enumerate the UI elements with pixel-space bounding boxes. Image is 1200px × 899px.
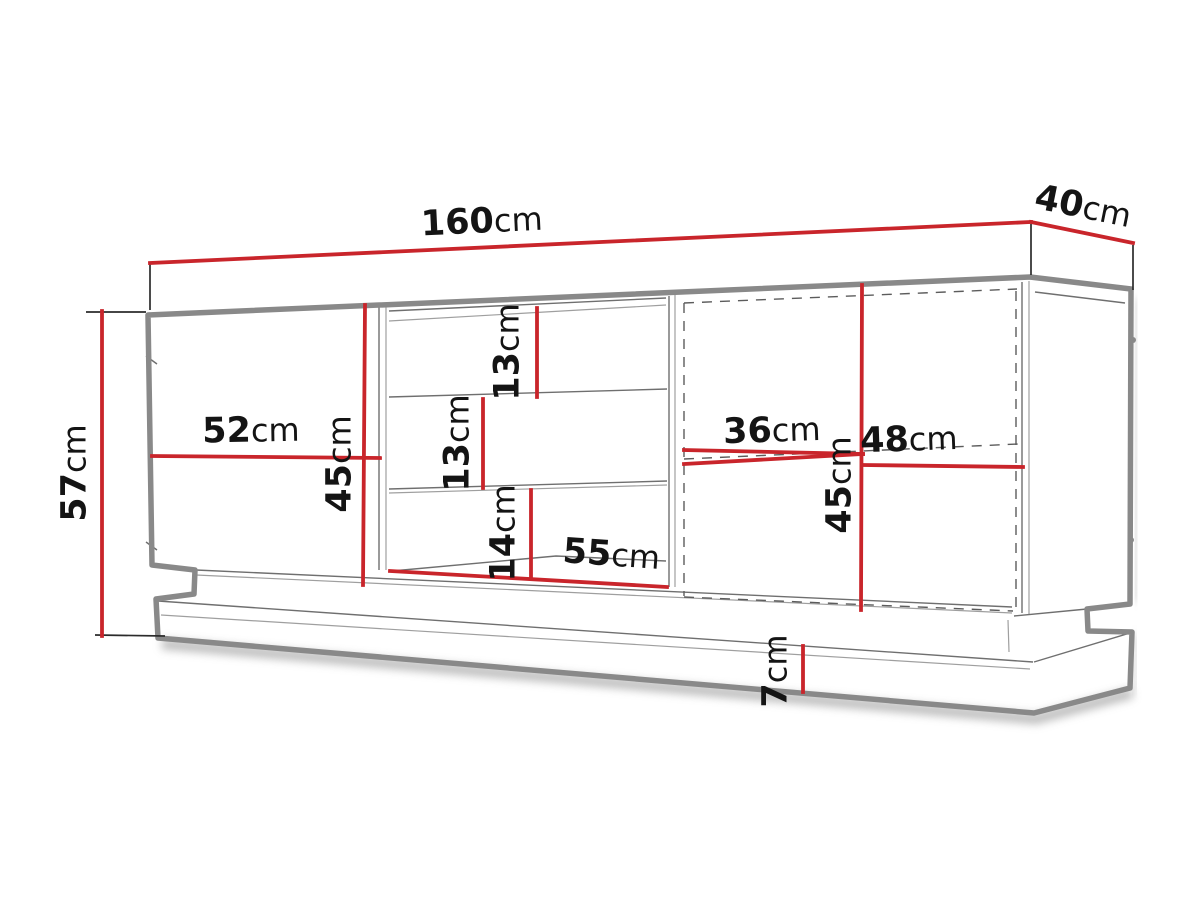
shadow-group xyxy=(162,298,1137,719)
label-depth: 40cm xyxy=(1031,177,1135,236)
dim-line-left-section-height xyxy=(363,305,365,585)
label-bottom-shelf-height: 14cm xyxy=(484,484,524,581)
tick-height-bottom xyxy=(95,635,165,636)
label-plinth-height: 7cm xyxy=(756,634,796,707)
side-band-edge xyxy=(1014,609,1087,616)
furniture-dimension-diagram: 160cm 40cm 57cm 52cm 45cm 13cm 13cm 14cm… xyxy=(0,0,1200,899)
dimension-labels: 160cm 40cm 57cm 52cm 45cm 13cm 13cm 14cm… xyxy=(55,177,1135,707)
label-left-section-height: 45cm xyxy=(320,415,360,512)
shelf-middle-2 xyxy=(389,485,667,493)
shelf-middle xyxy=(389,481,667,489)
plinth-top-edge-2 xyxy=(161,615,1030,669)
label-left-door-width: 52cm xyxy=(202,410,300,452)
body-bottom-edge xyxy=(196,570,1012,607)
band-corner-edge xyxy=(1008,620,1009,652)
cabinet-detail-lines xyxy=(146,281,1136,669)
shadow-right-upper xyxy=(1135,298,1137,602)
label-right-inner-width: 36cm xyxy=(722,409,821,452)
body-bottom-edge-2 xyxy=(196,575,1012,613)
niche-top-line-2 xyxy=(389,305,666,321)
label-total-height: 57cm xyxy=(55,424,95,521)
label-shelf-width: 55cm xyxy=(561,531,661,578)
dim-line-right-door-width xyxy=(863,465,1023,467)
label-total-width: 160cm xyxy=(420,199,544,245)
tv-stand-drawing: 160cm 40cm 57cm 52cm 45cm 13cm 13cm 14cm… xyxy=(0,0,1200,899)
label-top-shelf-height: 13cm xyxy=(488,303,528,400)
label-right-section-height: 45cm xyxy=(820,436,860,533)
side-top-inner-edge xyxy=(1035,292,1125,303)
plinth-top-side-edge xyxy=(1034,633,1130,662)
label-right-door-width: 48cm xyxy=(859,418,958,461)
cabinet-outline xyxy=(148,277,1132,713)
dim-line-total-width xyxy=(150,222,1031,263)
shelf-top xyxy=(389,389,667,397)
label-middle-shelf-height: 13cm xyxy=(438,394,478,491)
